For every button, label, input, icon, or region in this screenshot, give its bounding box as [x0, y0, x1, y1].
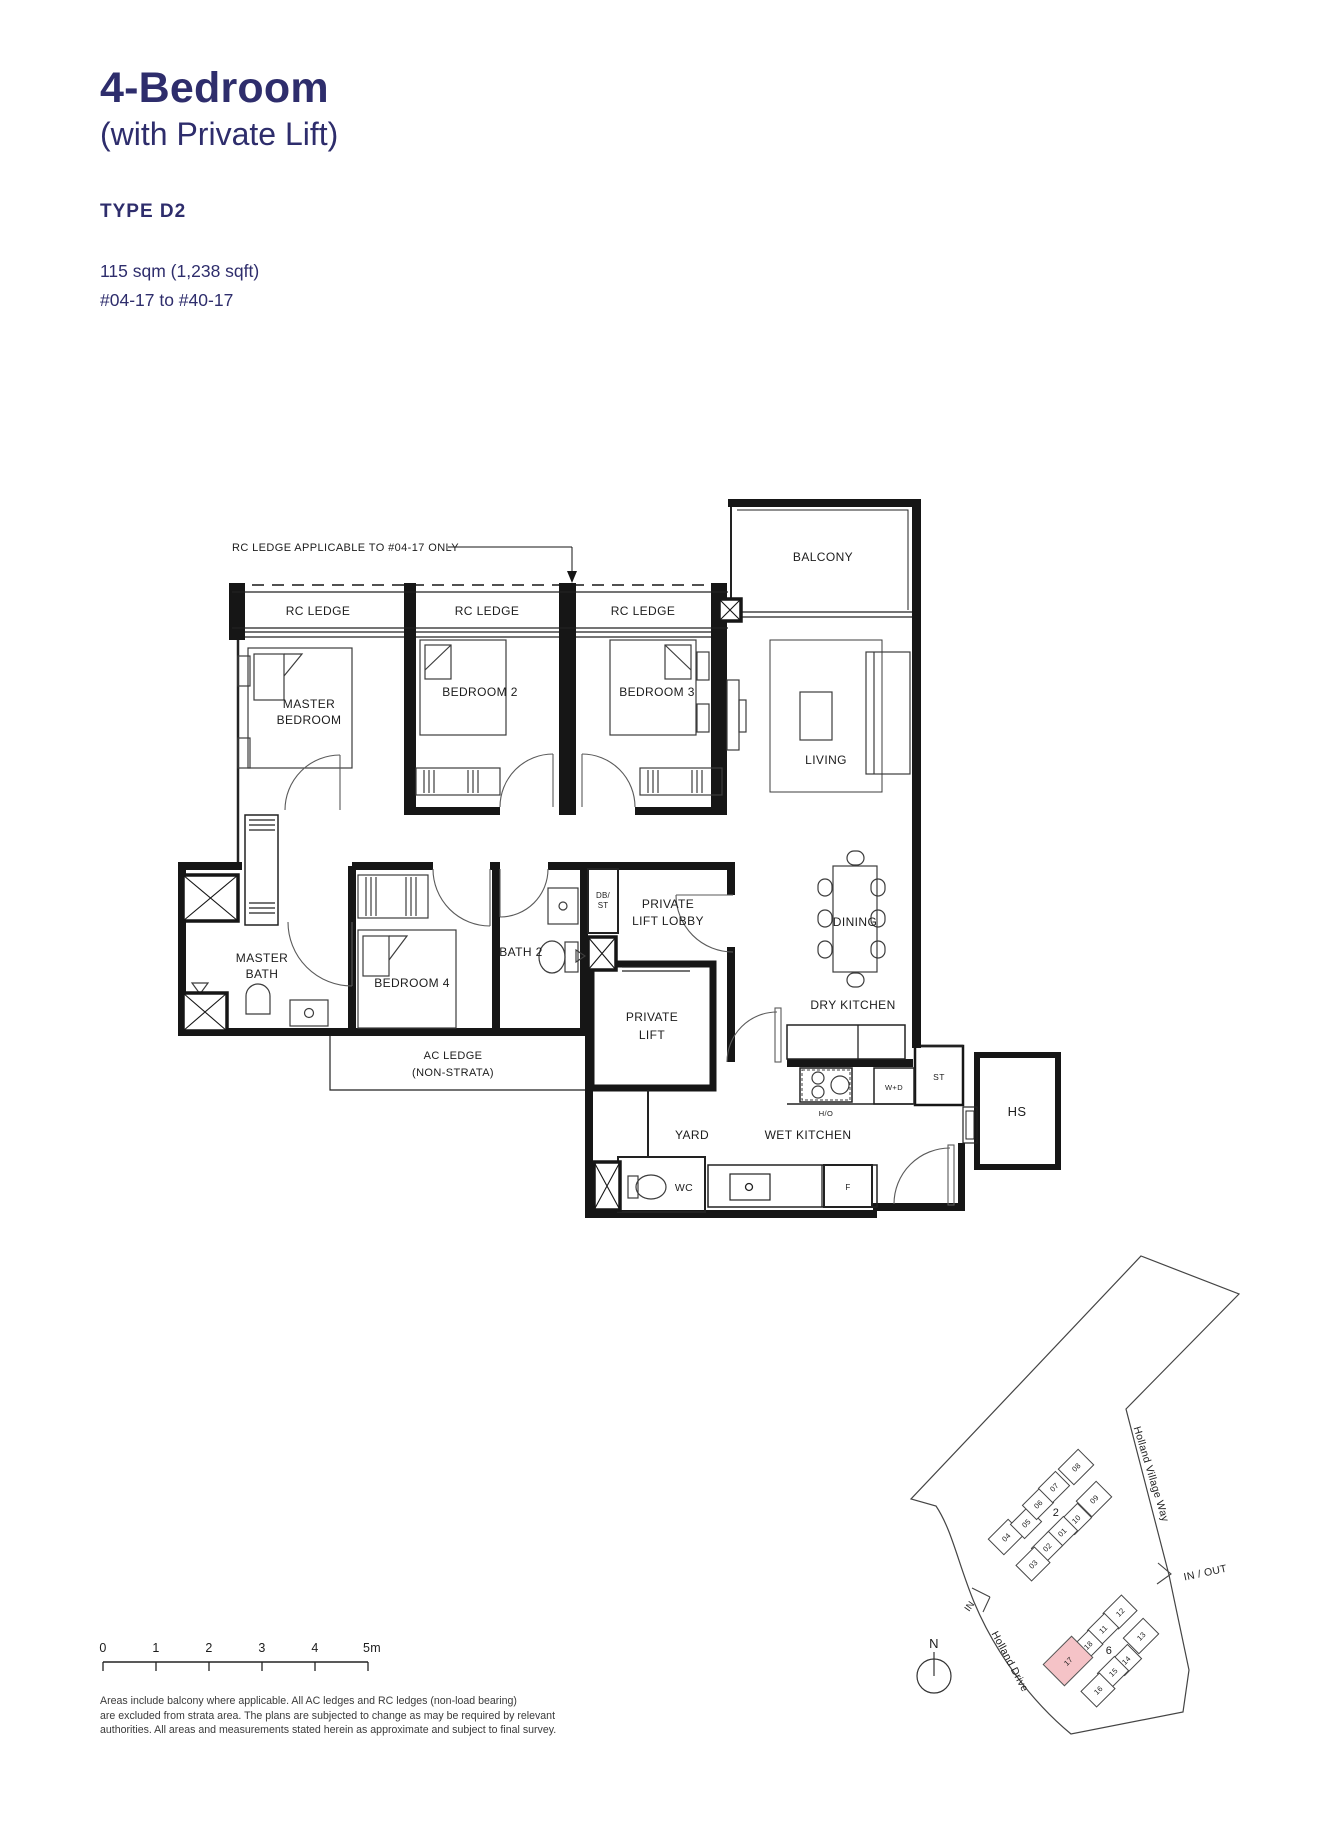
svg-text:BATH: BATH [246, 967, 279, 981]
label-rc-ledge-2: RC LEDGE [455, 604, 520, 618]
label-rc-ledge-3: RC LEDGE [611, 604, 676, 618]
label-washer-dryer: W+D [885, 1083, 903, 1092]
label-bedroom4: BEDROOM 4 [374, 976, 450, 990]
master-bath-toilet [246, 984, 270, 1014]
label-bedroom3: BEDROOM 3 [619, 685, 695, 699]
brochure-page: 4-Bedroom (with Private Lift) TYPE D2 11… [0, 0, 1320, 1836]
label-db-st: DB/ [596, 891, 611, 900]
label-fridge: F [845, 1183, 850, 1192]
disclaimer-line-3: authorities. All areas and measurements … [100, 1723, 556, 1738]
label-dining: DINING [833, 915, 877, 929]
site-in-label: IN [963, 1599, 978, 1614]
disclaimer: Areas include balcony where applicable. … [100, 1694, 556, 1738]
site-in-out-label: IN / OUT [1183, 1563, 1229, 1584]
tv-console [727, 680, 739, 750]
wc-toilet [636, 1175, 666, 1199]
hob [802, 1070, 850, 1100]
ac-ledge-strip [330, 1036, 585, 1090]
site-block6-label: 6 [1106, 1645, 1112, 1657]
site-block2-label: 2 [1053, 1507, 1059, 1519]
label-master-bedroom: MASTER [283, 697, 335, 711]
label-wc: WC [675, 1182, 693, 1194]
floorplan-outer-walls [182, 866, 1058, 1167]
scale-tick-1: 1 [152, 1641, 159, 1655]
label-bath2: BATH 2 [499, 945, 543, 959]
scale-bar: 0 1 2 3 4 5m [99, 1641, 381, 1671]
callout-text: RC LEDGE APPLICABLE TO #04-17 ONLY [232, 542, 459, 554]
label-yard: YARD [675, 1128, 709, 1142]
site-block-6: 12 11 13 18 14 15 16 17 6 [1043, 1595, 1158, 1707]
bath2-sink [548, 888, 578, 924]
label-rc-ledge-1: RC LEDGE [286, 604, 351, 618]
north-compass: N [917, 1636, 951, 1693]
wet-kitchen-counter [708, 1165, 877, 1207]
scale-tick-2: 2 [205, 1641, 212, 1655]
coffee-table [800, 692, 832, 740]
dry-kitchen-counter [787, 1025, 905, 1059]
label-ac-ledge: AC LEDGE [424, 1050, 483, 1062]
living-rug [770, 640, 882, 792]
private-lift-shaft [591, 964, 713, 1088]
scale-tick-4: 4 [311, 1641, 318, 1655]
scale-tick-0: 0 [99, 1641, 106, 1655]
site-plan: 04 05 06 07 08 09 10 01 02 03 2 12 11 13… [911, 1256, 1239, 1734]
label-store: ST [933, 1072, 945, 1082]
hob-counter [800, 1068, 852, 1102]
site-block-2: 04 05 06 07 08 09 10 01 02 03 2 [988, 1449, 1111, 1581]
label-living: LIVING [805, 753, 847, 767]
svg-text:LIFT: LIFT [639, 1028, 666, 1042]
disclaimer-line-1: Areas include balcony where applicable. … [100, 1694, 556, 1709]
label-master-bath: MASTER [236, 951, 288, 965]
bath2-toilet [539, 941, 565, 973]
kitchen-sink [730, 1174, 770, 1200]
label-hob: H/O [819, 1109, 834, 1118]
svg-text:LIFT LOBBY: LIFT LOBBY [632, 914, 704, 928]
bedroom4-wardrobe [358, 875, 428, 918]
label-dry-kitchen: DRY KITCHEN [810, 998, 895, 1012]
floor-plan-drawing: RC LEDGE APPLICABLE TO #04-17 ONLY RC LE… [0, 0, 1320, 1836]
svg-text:(NON-STRATA): (NON-STRATA) [412, 1067, 494, 1079]
label-private-lift: PRIVATE [626, 1010, 678, 1024]
label-private-lift-lobby: PRIVATE [642, 897, 694, 911]
road-holland-village-way: Holland Village Way [1131, 1425, 1172, 1524]
north-label: N [929, 1636, 939, 1651]
disclaimer-line-2: are excluded from strata area. The plans… [100, 1709, 556, 1724]
label-household-shelter: HS [1008, 1104, 1027, 1119]
sofa [866, 652, 910, 774]
scale-tick-3: 3 [258, 1641, 265, 1655]
rc-ledge-callout: RC LEDGE APPLICABLE TO #04-17 ONLY [232, 542, 728, 585]
svg-text:ST: ST [598, 901, 609, 910]
label-balcony: BALCONY [793, 550, 853, 564]
master-bath-vanity [290, 1000, 328, 1026]
label-wet-kitchen: WET KITCHEN [765, 1128, 852, 1142]
scale-tick-5m: 5m [363, 1641, 381, 1655]
label-bedroom2: BEDROOM 2 [442, 685, 518, 699]
road-holland-drive: Holland Drive [989, 1629, 1031, 1694]
bedroom3-console [640, 768, 722, 795]
svg-text:BEDROOM: BEDROOM [277, 713, 342, 727]
